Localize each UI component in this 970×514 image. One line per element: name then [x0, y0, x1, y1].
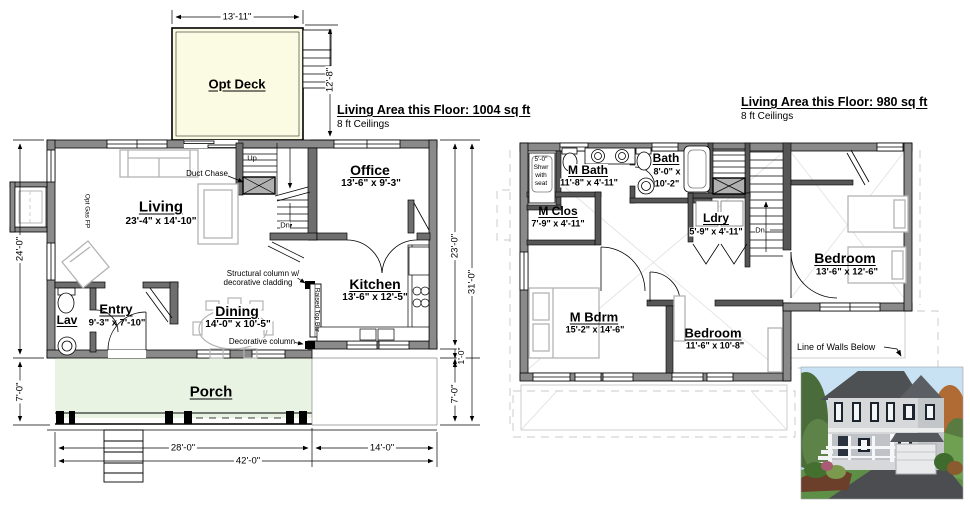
room-label-deck: Opt Deck — [208, 78, 265, 91]
room-size-mclos: 7'-9" x 4'-11" — [531, 220, 584, 229]
dim-right-total: 31'-0" — [467, 268, 477, 296]
room-size-bedroom-mid: 11'-6" x 10'-8" — [686, 342, 744, 351]
room-label-ldry: Ldry — [703, 212, 729, 224]
annotation-dn: Dn — [280, 221, 290, 229]
floor1-ceilings-label: 8 ft Ceilings — [337, 120, 389, 130]
annotation-shower-2: Shwr — [534, 165, 549, 172]
room-size-office: 13'-6" x 9'-3" — [341, 179, 401, 189]
annotation-raised-top-bar: Raised Top Bar — [312, 288, 319, 332]
room-label-living: Living — [139, 200, 183, 215]
room-size-bedroom-right: 13'-6" x 12'-6" — [816, 267, 878, 277]
floorplan-sheet: Living Area this Floor: 1004 sq ft 8 ft … — [0, 0, 970, 514]
floor2-duct-chase-icon — [713, 178, 745, 194]
room-size-mbath: 11'-8" x 4'-11" — [560, 179, 618, 188]
floor2-area-label: Living Area this Floor: 980 sq ft — [741, 96, 927, 109]
room-size-mbdrm: 15'-2" x 14'-6" — [566, 326, 625, 335]
room-label-lav: Lav — [57, 314, 78, 326]
room-label-mbdrm: M Bdrm — [570, 311, 618, 324]
room-size-bath-1: 8'-0" x — [654, 168, 681, 177]
front-steps-icon — [104, 430, 143, 482]
dresser2-icon — [768, 328, 782, 372]
annotation-duct-chase: Duct Chase — [186, 170, 228, 178]
annotation-decorative-column: Decorative column — [229, 338, 295, 346]
room-label-bedroom-right: Bedroom — [814, 251, 875, 265]
room-size-entry: 9'-3" x 7'-10" — [89, 318, 146, 328]
dim-bottom-right: 14'-0" — [368, 443, 396, 453]
room-label-porch: Porch — [190, 385, 233, 400]
annotation-structural-column-2: decorative cladding — [224, 279, 293, 287]
room-label-office: Office — [350, 163, 390, 177]
room-label-bedroom-mid: Bedroom — [684, 327, 741, 340]
room-label-mbath: M Bath — [568, 164, 608, 176]
dim-bottom-total: 42'-0" — [234, 456, 262, 466]
bath-toilet-icon — [637, 152, 651, 170]
dim-right-main: 23'-0" — [450, 232, 460, 260]
dim-left-porch: 7'-0" — [15, 381, 25, 404]
dim-right-porch: 7'-0" — [450, 383, 460, 406]
duct-chase-icon — [243, 177, 275, 194]
deck-landing — [303, 30, 331, 50]
annotation-shower-3: with — [535, 173, 547, 180]
room-label-bath: Bath — [653, 152, 680, 164]
decorative-column-icon — [305, 341, 315, 349]
annotation-opt-gas-fp: Opt Gas FP — [83, 194, 90, 228]
open-area-below-kitchen — [312, 358, 437, 425]
fridge-icon — [409, 247, 429, 275]
annotation-shower-4: seat — [535, 181, 547, 188]
dresser-icon — [674, 296, 685, 341]
room-label-mclos: M Clos — [538, 205, 577, 217]
floor1-area-label: Living Area this Floor: 1004 sq ft — [337, 104, 530, 117]
floor2-annotation-dn: Dn — [755, 226, 765, 234]
dim-right-offset: 1'-0" — [457, 346, 466, 367]
annotation-line-of-walls: Line of Walls Below — [797, 343, 875, 352]
room-size-living: 23'-4" x 14'-10" — [126, 217, 197, 227]
room-label-dining: Dining — [213, 304, 261, 318]
floor2-ceilings-label: 8 ft Ceilings — [741, 112, 793, 122]
house-rendering-photo — [784, 367, 970, 499]
room-label-entry: Entry — [99, 303, 132, 316]
annotation-shower-1: 5'-0" — [535, 157, 548, 164]
dim-left-main: 24'-0" — [15, 235, 25, 263]
toilet-icon — [58, 293, 74, 313]
annotation-up: Up — [247, 154, 257, 162]
dim-deck-depth: 12'-8" — [325, 66, 335, 94]
room-label-kitchen: Kitchen — [349, 277, 400, 291]
room-size-ldry: 5'-9" x 4'-11" — [689, 228, 742, 237]
line-of-walls-arrow — [884, 347, 901, 356]
room-size-kitchen: 13'-6" x 12'-5" — [342, 293, 407, 303]
dim-bottom-left: 28'-0" — [169, 443, 197, 453]
dim-deck-width: 13'-11" — [221, 12, 254, 22]
room-size-dining: 14'-0" x 10'-5" — [203, 320, 272, 330]
room-size-bath-2: 10'-2" — [655, 180, 679, 189]
annotation-structural-column-1: Structural column w/ — [227, 270, 299, 278]
